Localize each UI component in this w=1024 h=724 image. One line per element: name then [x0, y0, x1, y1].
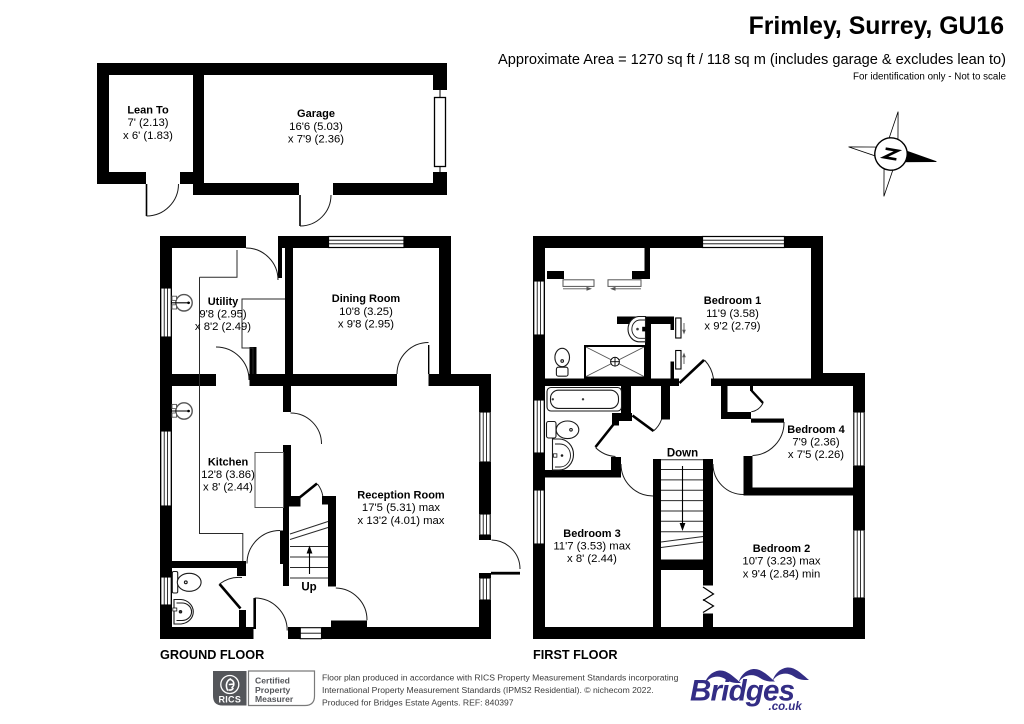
svg-text:10'8 (3.25): 10'8 (3.25): [339, 306, 393, 318]
svg-text:Bedroom 1: Bedroom 1: [704, 295, 761, 307]
svg-text:16'6 (5.03): 16'6 (5.03): [289, 121, 343, 133]
svg-text:Produced for Bridges Estate Ag: Produced for Bridges Estate Agents. REF:…: [322, 698, 514, 708]
svg-text:x 7'9 (2.36): x 7'9 (2.36): [288, 134, 344, 146]
svg-text:Frimley, Surrey, GU16: Frimley, Surrey, GU16: [749, 13, 1004, 40]
svg-text:Reception Room: Reception Room: [357, 490, 445, 502]
svg-text:Measurer: Measurer: [255, 694, 294, 704]
svg-text:12'8 (3.86): 12'8 (3.86): [201, 469, 255, 481]
svg-text:17'5 (5.31) max: 17'5 (5.31) max: [362, 502, 440, 514]
svg-text:Bedroom 3: Bedroom 3: [563, 528, 620, 540]
svg-text:Down: Down: [667, 448, 698, 460]
svg-text:Floor plan produced in accorda: Floor plan produced in accordance with R…: [322, 673, 679, 683]
svg-text:11'7 (3.53) max: 11'7 (3.53) max: [553, 541, 631, 553]
svg-text:x 13'2 (4.01) max: x 13'2 (4.01) max: [358, 515, 445, 527]
svg-text:x 8' (2.44): x 8' (2.44): [203, 482, 253, 494]
svg-text:Approximate Area = 1270 sq ft: Approximate Area = 1270 sq ft / 118 sq m…: [498, 52, 1006, 68]
svg-text:Dining Room: Dining Room: [332, 293, 401, 305]
svg-text:International Property Measure: International Property Measurement Stand…: [322, 685, 654, 695]
svg-text:9'8 (2.95): 9'8 (2.95): [199, 309, 247, 321]
svg-text:x 7'5 (2.26): x 7'5 (2.26): [788, 449, 844, 461]
svg-text:x 8' (2.44): x 8' (2.44): [567, 553, 617, 565]
svg-text:Up: Up: [301, 582, 316, 594]
svg-text:Bedroom 4: Bedroom 4: [787, 424, 845, 436]
svg-text:10'7 (3.23) max: 10'7 (3.23) max: [742, 556, 820, 568]
svg-text:Garage: Garage: [297, 108, 335, 120]
svg-text:x 8'2 (2.49): x 8'2 (2.49): [195, 321, 251, 333]
svg-text:x 6' (1.83): x 6' (1.83): [123, 130, 173, 142]
svg-text:FIRST FLOOR: FIRST FLOOR: [533, 648, 618, 662]
svg-text:Kitchen: Kitchen: [208, 456, 249, 468]
svg-text:Bedroom 2: Bedroom 2: [753, 543, 810, 555]
svg-text:GROUND FLOOR: GROUND FLOOR: [160, 648, 264, 662]
svg-text:Utility: Utility: [208, 296, 239, 308]
svg-text:RICS: RICS: [218, 695, 241, 705]
svg-text:x 9'4 (2.84) min: x 9'4 (2.84) min: [743, 568, 821, 580]
svg-text:x 9'8 (2.95): x 9'8 (2.95): [338, 319, 394, 331]
svg-text:For identification only - Not: For identification only - Not to scale: [853, 72, 1007, 83]
svg-text:.co.uk: .co.uk: [769, 701, 803, 713]
svg-text:11'9 (3.58): 11'9 (3.58): [706, 308, 759, 320]
svg-text:7'9 (2.36): 7'9 (2.36): [792, 437, 840, 449]
svg-text:7' (2.13): 7' (2.13): [127, 117, 168, 129]
svg-text:x 9'2 (2.79): x 9'2 (2.79): [704, 321, 760, 333]
svg-text:Lean To: Lean To: [127, 105, 169, 117]
